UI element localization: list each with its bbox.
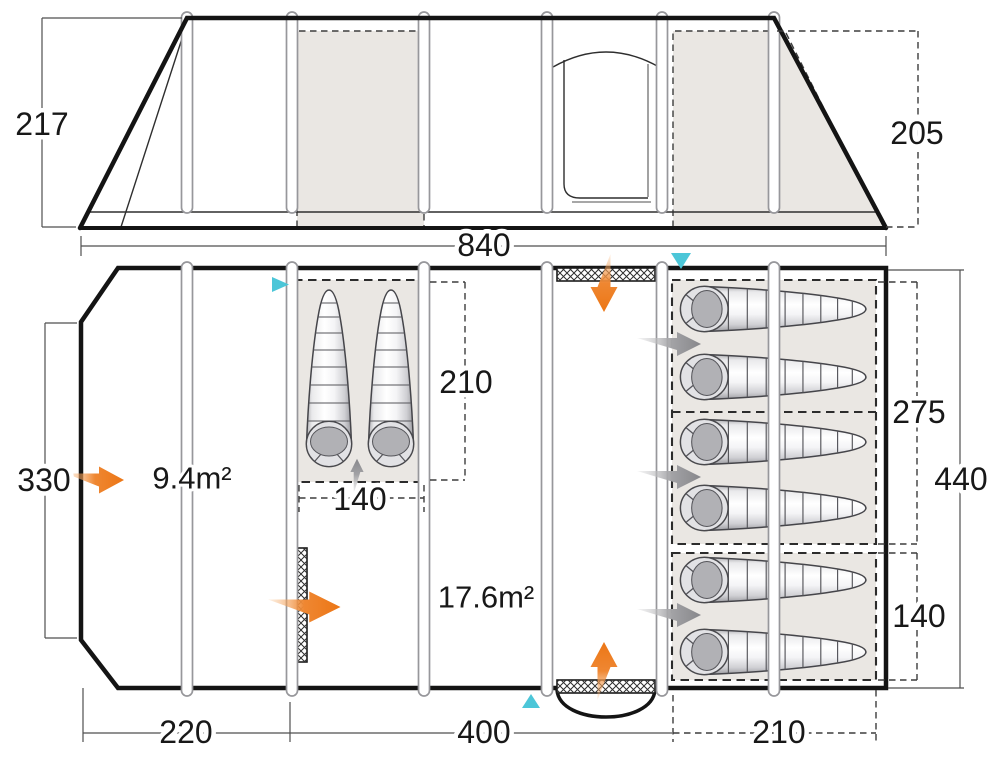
pole-icon [657,12,668,213]
floor-plan: 9.4m² 17.6m² 330 220 400 210 210 140 275 [17,253,987,750]
living-area-label: 17.6m² [438,580,534,615]
dim-label-217: 217 [15,106,68,142]
pole-icon [287,262,298,696]
dim-label-400: 400 [457,714,510,750]
side-elevation: 217 205 840 [15,12,943,263]
porch-area-label: 9.4m² [152,461,231,496]
pole-icon [182,12,193,213]
dim-label-210-bottom: 210 [752,714,805,750]
pole-icon [419,262,430,696]
pole-icon [419,12,430,213]
elevation-panel-left [297,31,424,227]
pole-icon [769,12,780,213]
dimension-length: 840 [81,227,886,263]
dim-label-440: 440 [934,461,987,497]
vent-triangle-icon [522,694,540,708]
dim-label-275: 275 [892,394,945,430]
dim-label-140-right: 140 [892,598,945,634]
dimension-right-bedroom: 275 140 440 [878,270,988,688]
dim-label-210-pod: 210 [439,364,492,400]
dim-label-205: 205 [890,115,943,151]
front-door-arch [557,690,655,717]
dimension-bottom-sections: 220 400 210 [83,688,876,750]
dim-label-220: 220 [159,714,212,750]
pole-icon [542,12,553,213]
pole-icon [542,262,553,696]
dimension-width: 330 [17,323,77,638]
pole-icon [769,262,780,696]
pole-icon [287,12,298,213]
tent-floorplan-diagram: 217 205 840 [0,0,1000,760]
dim-label-140-pod: 140 [333,481,386,517]
dim-label-330: 330 [17,462,70,498]
dim-label-840: 840 [457,227,510,263]
mesh-door-bottom [557,680,655,693]
